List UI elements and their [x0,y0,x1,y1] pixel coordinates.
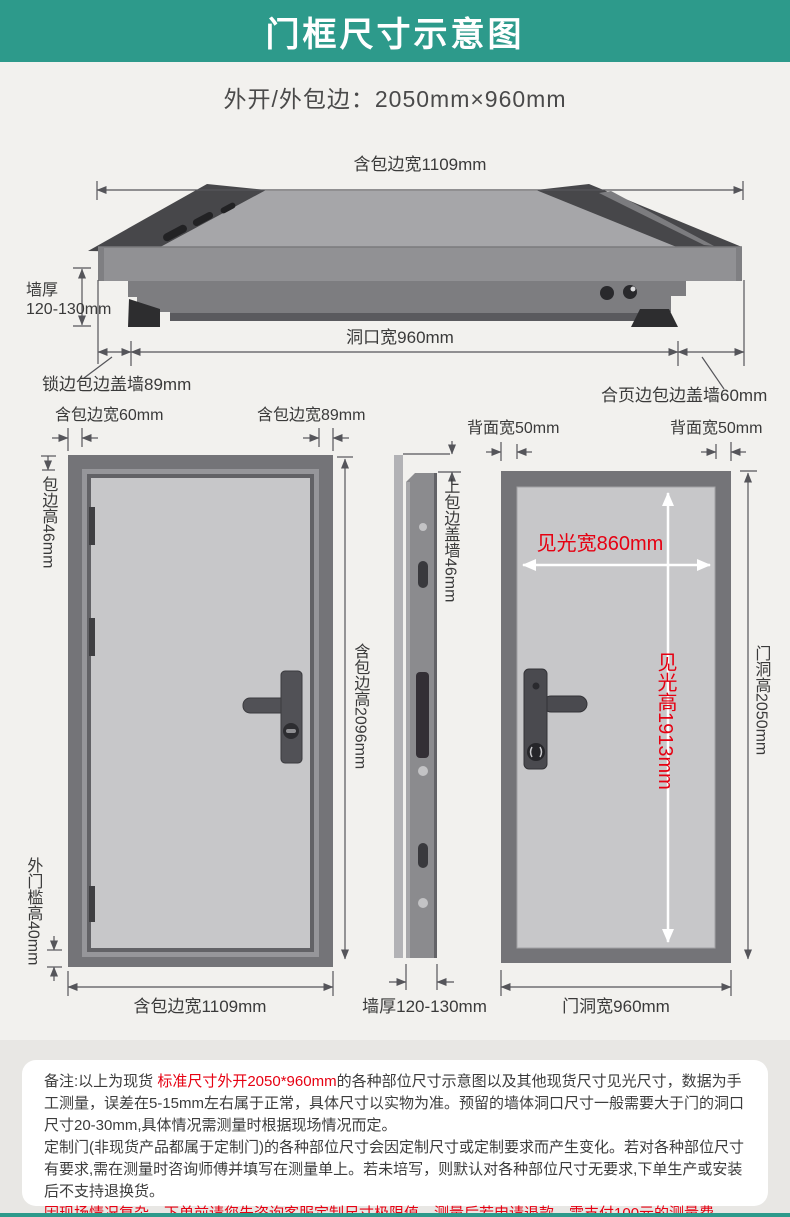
door-front-view [41,428,353,996]
dim-label-visible-width: 见光宽860mm [500,533,700,556]
lock-body-slot [416,672,429,758]
dim-label-hole-height: 门洞高2050mm [751,645,769,755]
frame-isometric-drawing [88,184,742,327]
dim-label-opening-width: 洞口宽960mm [300,328,500,348]
dim-label-side-wall-thickness: 墙厚120-130mm [352,997,497,1017]
dim-label-front-top-right-width: 含包边宽89mm [257,407,365,425]
dim-label-front-threshold-height: 外门槛高40mm [23,857,41,965]
page: 门框尺寸示意图 外开/外包边：2050mm×960mm [0,0,790,1217]
notes-text: 定制门(非现货产品都属于定制门)的各种部位尺寸会因定制尺寸或定制要求而产生变化。… [44,1139,744,1200]
dim-label-back-width-right: 背面宽50mm [670,420,762,438]
dim-label-lock-side-cover: 锁边包边盖墙89mm [42,375,191,395]
dim-label-front-total-height: 含包边高2096mm [350,643,368,769]
dim-label-visible-height: 见光高1913mm [653,652,676,790]
notes-text-highlight: 标准尺寸外开2050*960mm [157,1073,336,1090]
hinge-bottom [89,886,95,922]
bottom-accent-line [0,1213,790,1217]
door-back-view [486,442,757,996]
dim-label-hole-width: 门洞宽960mm [536,997,696,1017]
notes-paragraph-2: 定制门(非现货产品都属于定制门)的各种部位尺寸会因定制尺寸或定制要求而产生变化。… [44,1137,746,1203]
dim-label-frame-overall-width: 含包边宽1109mm [320,155,520,175]
hinge-top [89,507,95,545]
hinge-middle [89,618,95,656]
notes-card: 备注:以上为现货 标准尺寸外开2050*960mm的各种部位尺寸示意图以及其他现… [22,1060,768,1206]
dim-label-side-top-cover: 上包边盖墙46mm [440,478,458,602]
dim-label-wall-thickness-1: 墙厚 [26,282,58,300]
diagram-canvas [0,0,790,1217]
notes-paragraph-1: 备注:以上为现货 标准尺寸外开2050*960mm的各种部位尺寸示意图以及其他现… [44,1071,746,1137]
dim-label-back-width-left: 背面宽50mm [467,420,559,438]
notes-text: 备注:以上为现货 [44,1073,157,1090]
dim-label-front-top-left-width: 含包边宽60mm [55,407,163,425]
dim-label-hinge-side-cover: 合页边包边盖墙60mm [601,386,767,406]
dim-label-front-total-width: 含包边宽1109mm [100,997,300,1017]
dim-label-front-edge-height: 包边高46mm [38,476,56,568]
dim-label-wall-thickness-2: 120-130mm [26,301,111,319]
